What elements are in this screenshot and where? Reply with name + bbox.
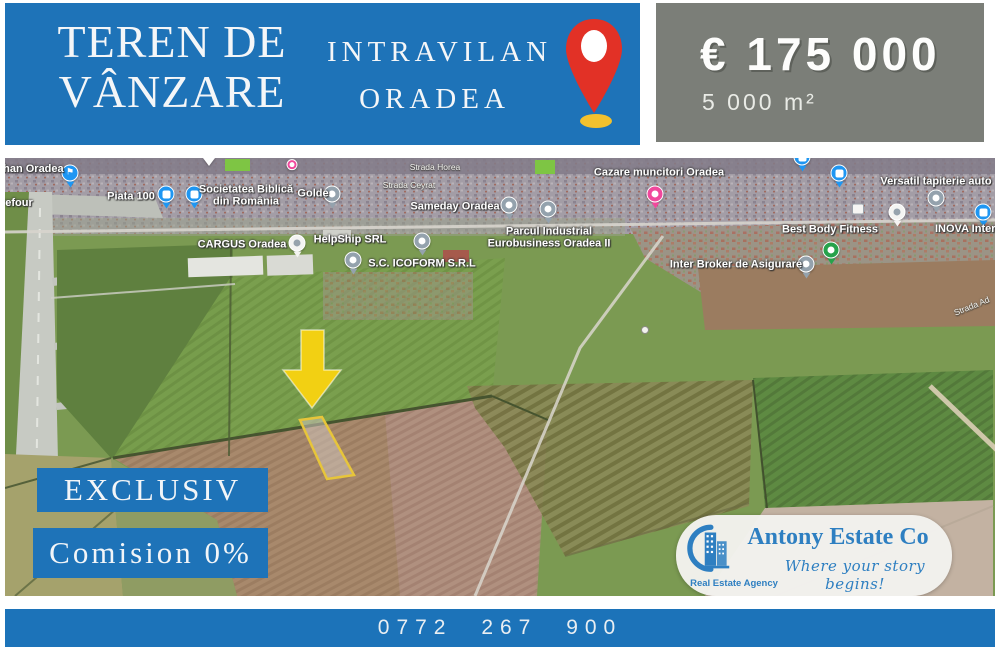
map-label-best-body: Best Body Fitness xyxy=(782,224,878,236)
highlighted-plot xyxy=(300,417,354,479)
flyer-location: INTRAVILAN ORADEA xyxy=(327,29,542,123)
logo-buildings-icon xyxy=(685,522,735,578)
price-panel: € 175 000 5 000 m² xyxy=(656,3,984,142)
map-label-icoform: S.C. ICOFORM S.R.L xyxy=(368,258,476,270)
map-label-piata-100: Piata 100 xyxy=(107,191,155,203)
mini-pin xyxy=(287,159,298,170)
flyer-title-line1: TEREN DE xyxy=(27,17,317,67)
phone-number: 0772 267 900 xyxy=(5,609,995,647)
flyer-location-line2: ORADEA xyxy=(327,76,542,123)
map-label-societatea: Societatea Biblică din România xyxy=(199,185,293,208)
map-label-cargus: CARGUS Oradea xyxy=(198,239,287,251)
poi-pin-white xyxy=(889,203,906,220)
clipped-pin-chevron xyxy=(203,158,215,166)
agency-name: Antony Estate Co xyxy=(732,524,944,551)
street-label-horea: Strada Horea xyxy=(410,162,461,172)
poi-pin-sameday xyxy=(501,196,518,213)
arrow-down-icon xyxy=(283,330,341,408)
lodging-pin-cazare xyxy=(647,185,664,202)
flyer-title-line2: VÂNZARE xyxy=(27,67,317,117)
phone-bar: 0772 267 900 xyxy=(5,609,995,647)
map-label-sameday: Sameday Oradea xyxy=(410,201,499,213)
exclusiv-badge: EXCLUSIV xyxy=(37,468,268,512)
map-label-versatil: Versatil tapiterie auto xyxy=(880,176,991,188)
map-label-inter-broker: Inter Broker de Asigurare xyxy=(670,259,802,271)
lodging-pin-inova xyxy=(975,203,992,220)
agency-logo: Antony Estate Co Where your story begins… xyxy=(676,515,952,596)
map-label-inova: INOVA Internat xyxy=(935,224,995,236)
flyer-title: TEREN DE VÂNZARE xyxy=(27,17,317,117)
street-label-ceyrat: Strada Ceyrat xyxy=(383,180,435,190)
poi-pin-versatil xyxy=(928,189,945,206)
poi-pin-parcul xyxy=(540,200,557,217)
real-estate-flyer: { "header": { "title": ["TEREN DE", "VÂN… xyxy=(0,0,1000,647)
title-banner: TEREN DE VÂNZARE INTRAVILAN ORADEA xyxy=(5,3,640,145)
flag-pin xyxy=(62,164,79,181)
price-value: € 175 000 xyxy=(700,27,941,81)
cart-pin-2 xyxy=(831,164,848,181)
cart-pin xyxy=(158,185,175,202)
map-label-parcul-industrial: Parcul Industrial Eurobusiness Oradea II xyxy=(488,227,611,250)
flyer-location-line1: INTRAVILAN xyxy=(327,29,542,76)
fitness-pin-bestbody xyxy=(823,241,840,258)
mini-poi-icon xyxy=(852,204,864,215)
map-label-golde: Golde xyxy=(297,188,328,200)
land-area: 5 000 m² xyxy=(702,89,817,116)
agency-tagline: Where your story begins! xyxy=(766,557,944,593)
comision-badge: Comision 0% xyxy=(33,528,268,578)
map-label-cazare: Cazare muncitori Oradea xyxy=(594,167,724,179)
map-label-ehan-oradea: ehan Oradea xyxy=(5,164,64,176)
poi-pin-icoform xyxy=(345,251,362,268)
satellite-map: ehan Oradea refour Piata 100 Societatea … xyxy=(5,158,995,596)
map-label-carrefour: refour xyxy=(5,198,33,210)
poi-pin-helpship xyxy=(414,232,431,249)
poi-pin-cargus xyxy=(289,234,306,251)
location-pin-icon xyxy=(561,17,627,133)
map-label-helpship: HelpShip SRL xyxy=(314,234,387,246)
agency-subtitle: Real Estate Agency xyxy=(689,578,779,589)
